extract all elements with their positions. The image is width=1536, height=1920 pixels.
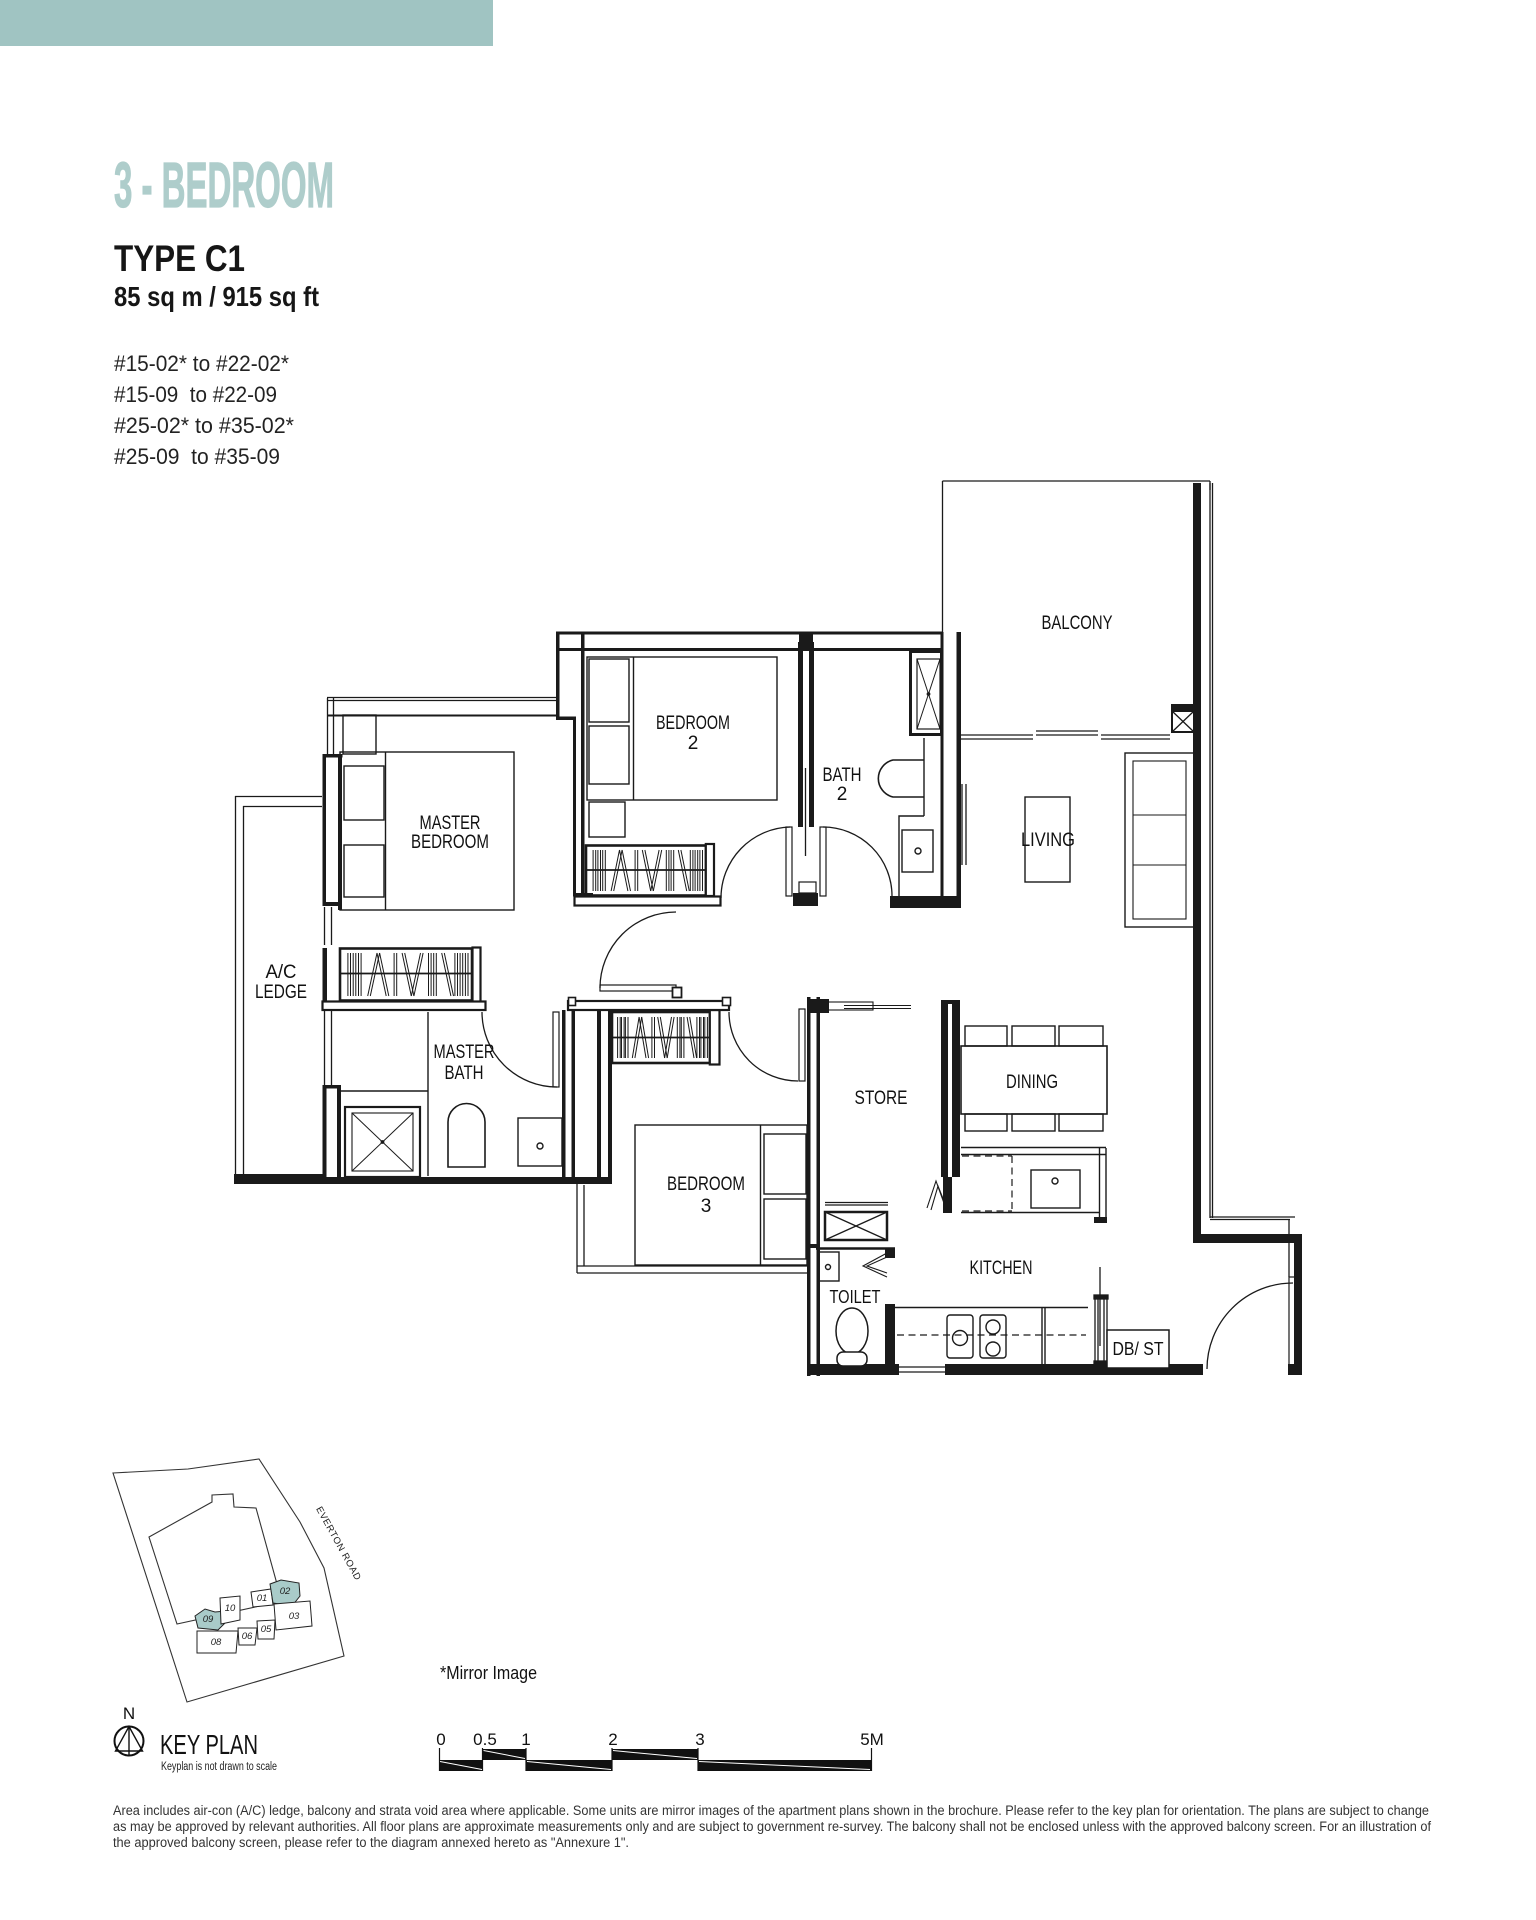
svg-text:BEDROOM: BEDROOM: [667, 1174, 745, 1195]
svg-text:2: 2: [608, 1730, 617, 1749]
svg-text:1: 1: [521, 1730, 530, 1749]
svg-text:08: 08: [211, 1637, 222, 1648]
svg-text:MASTER: MASTER: [434, 1042, 495, 1063]
svg-text:BATH: BATH: [445, 1063, 484, 1084]
svg-text:as may be approved by relevant: as may be approved by relevant authoriti…: [113, 1819, 1431, 1834]
svg-text:N: N: [123, 1704, 135, 1723]
svg-text:85 sq m / 915 sq ft: 85 sq m / 915 sq ft: [114, 281, 319, 312]
svg-text:LEDGE: LEDGE: [255, 982, 307, 1003]
svg-text:the approved balcony screen, p: the approved balcony screen, please refe…: [113, 1835, 629, 1850]
svg-text:LIVING: LIVING: [1021, 830, 1075, 851]
svg-text:2: 2: [837, 784, 848, 805]
svg-text:BALCONY: BALCONY: [1042, 613, 1113, 634]
svg-text:09: 09: [203, 1614, 214, 1625]
svg-text:BEDROOM: BEDROOM: [411, 832, 489, 853]
svg-text:3 - BEDROOM: 3 - BEDROOM: [114, 149, 334, 221]
svg-text:2: 2: [688, 733, 699, 754]
svg-text:03: 03: [289, 1611, 300, 1622]
svg-text:KITCHEN: KITCHEN: [970, 1258, 1033, 1279]
svg-text:10: 10: [225, 1603, 236, 1614]
svg-text:Area includes air-con (A/C) le: Area includes air-con (A/C) ledge, balco…: [113, 1803, 1429, 1818]
svg-text:MASTER: MASTER: [420, 813, 481, 834]
svg-text:TOILET: TOILET: [830, 1287, 881, 1307]
svg-text:#15-09 to #22-09: #15-09 to #22-09: [114, 382, 277, 407]
svg-text:Keyplan is not drawn to scale: Keyplan is not drawn to scale: [161, 1761, 277, 1773]
svg-text:*Mirror Image: *Mirror Image: [440, 1663, 537, 1683]
svg-text:A/C: A/C: [266, 962, 297, 983]
svg-text:#15-02* to #22-02*: #15-02* to #22-02*: [114, 351, 289, 376]
svg-text:BEDROOM: BEDROOM: [656, 713, 730, 734]
svg-text:3: 3: [701, 1196, 712, 1217]
svg-text:02: 02: [280, 1586, 291, 1597]
svg-text:DB/ ST: DB/ ST: [1113, 1339, 1164, 1359]
svg-text:TYPE C1: TYPE C1: [114, 238, 245, 279]
svg-text:05: 05: [261, 1624, 272, 1635]
svg-text:0: 0: [436, 1730, 445, 1749]
svg-text:BATH: BATH: [823, 765, 862, 786]
svg-text:3: 3: [695, 1730, 704, 1749]
svg-text:06: 06: [242, 1631, 253, 1642]
svg-text:0.5: 0.5: [473, 1730, 497, 1749]
svg-text:#25-02* to #35-02*: #25-02* to #35-02*: [114, 413, 294, 438]
svg-text:5M: 5M: [860, 1730, 884, 1749]
svg-text:DINING: DINING: [1006, 1072, 1058, 1093]
svg-text:#25-09 to #35-09: #25-09 to #35-09: [114, 444, 280, 469]
svg-text:STORE: STORE: [855, 1088, 908, 1109]
svg-text:KEY PLAN: KEY PLAN: [160, 1729, 258, 1760]
svg-text:01: 01: [257, 1593, 268, 1604]
